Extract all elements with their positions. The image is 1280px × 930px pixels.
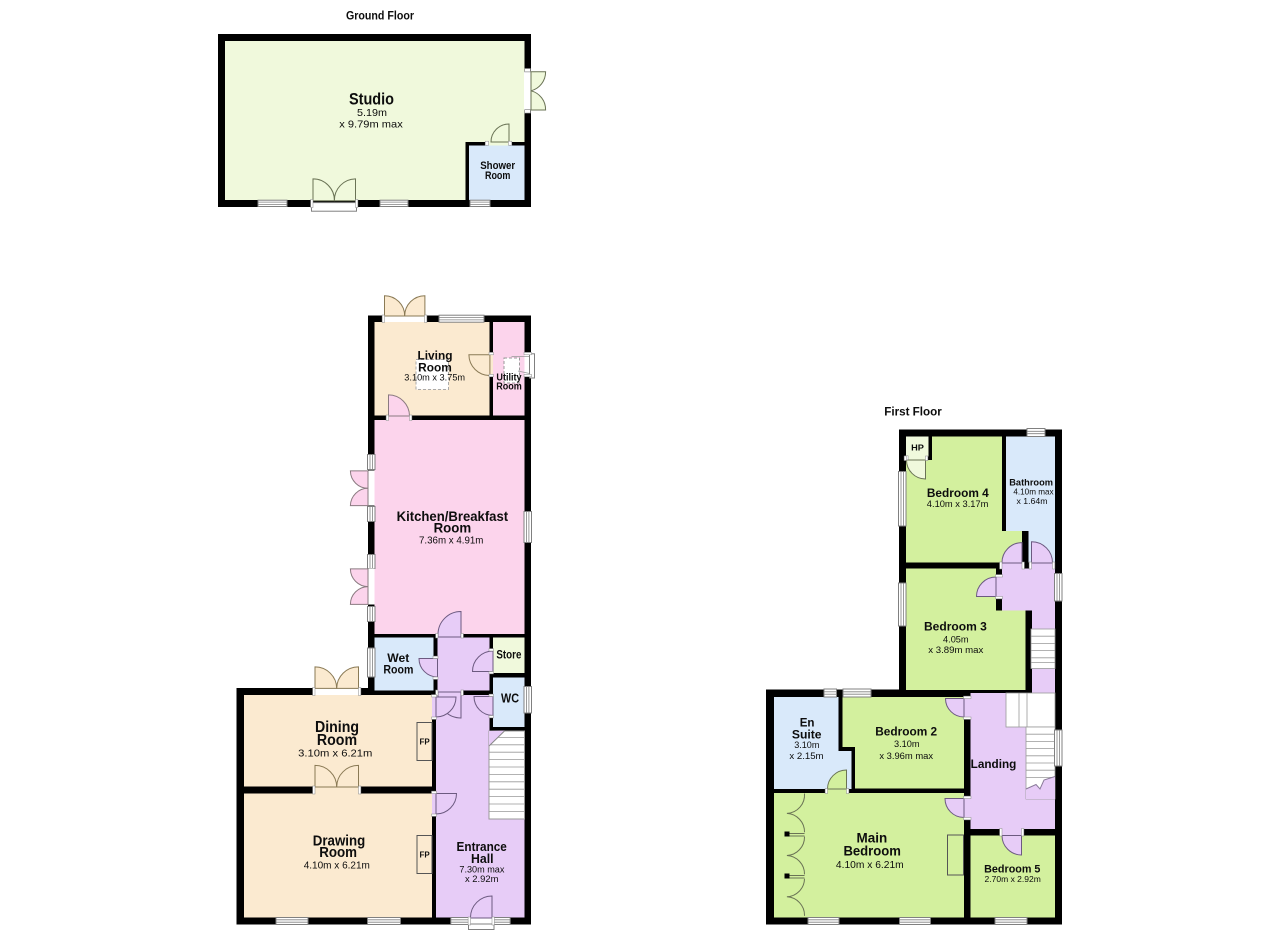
svg-text:3.10m: 3.10m <box>794 739 819 750</box>
svg-text:Ground Floor: Ground Floor <box>346 11 414 23</box>
svg-text:First Floor: First Floor <box>884 406 942 418</box>
svg-text:Room: Room <box>496 382 522 393</box>
svg-text:3.10m: 3.10m <box>894 738 920 749</box>
svg-text:x 3.89m max: x 3.89m max <box>928 644 983 655</box>
svg-text:Bedroom 2: Bedroom 2 <box>875 725 937 739</box>
svg-text:Landing: Landing <box>971 757 1017 771</box>
svg-text:Room: Room <box>383 662 413 676</box>
svg-text:7.36m x 4.91m: 7.36m x 4.91m <box>419 535 484 547</box>
svg-text:3.10m x 6.21m: 3.10m x 6.21m <box>298 748 372 760</box>
svg-text:FP: FP <box>419 851 430 860</box>
svg-text:4.10m x 3.17m: 4.10m x 3.17m <box>927 498 989 509</box>
svg-text:HP: HP <box>911 443 924 453</box>
svg-text:2.70m x 2.92m: 2.70m x 2.92m <box>985 874 1041 884</box>
svg-text:Room: Room <box>485 170 511 182</box>
svg-text:3.10m x 3.75m: 3.10m x 3.75m <box>404 373 465 384</box>
svg-text:Store: Store <box>496 649 521 661</box>
svg-text:x 2.15m: x 2.15m <box>789 750 823 761</box>
svg-text:x 3.96m max: x 3.96m max <box>879 750 933 761</box>
svg-text:x 2.92m: x 2.92m <box>465 874 499 884</box>
svg-text:WC: WC <box>501 691 519 705</box>
svg-text:Bedroom 3: Bedroom 3 <box>924 619 987 633</box>
svg-text:Bedroom: Bedroom <box>843 844 901 859</box>
svg-text:Living: Living <box>418 351 453 363</box>
svg-text:Room: Room <box>319 844 357 861</box>
svg-text:x 1.64m: x 1.64m <box>1017 496 1048 506</box>
svg-text:Room: Room <box>317 732 357 749</box>
svg-text:Room: Room <box>434 519 472 535</box>
svg-text:x 9.79m max: x 9.79m max <box>339 119 403 131</box>
svg-text:5.19m: 5.19m <box>357 107 387 119</box>
svg-text:4.10m x 6.21m: 4.10m x 6.21m <box>304 860 370 872</box>
svg-text:4.10m x 6.21m: 4.10m x 6.21m <box>836 859 904 871</box>
svg-text:FP: FP <box>419 738 430 747</box>
svg-text:Studio: Studio <box>349 91 394 109</box>
